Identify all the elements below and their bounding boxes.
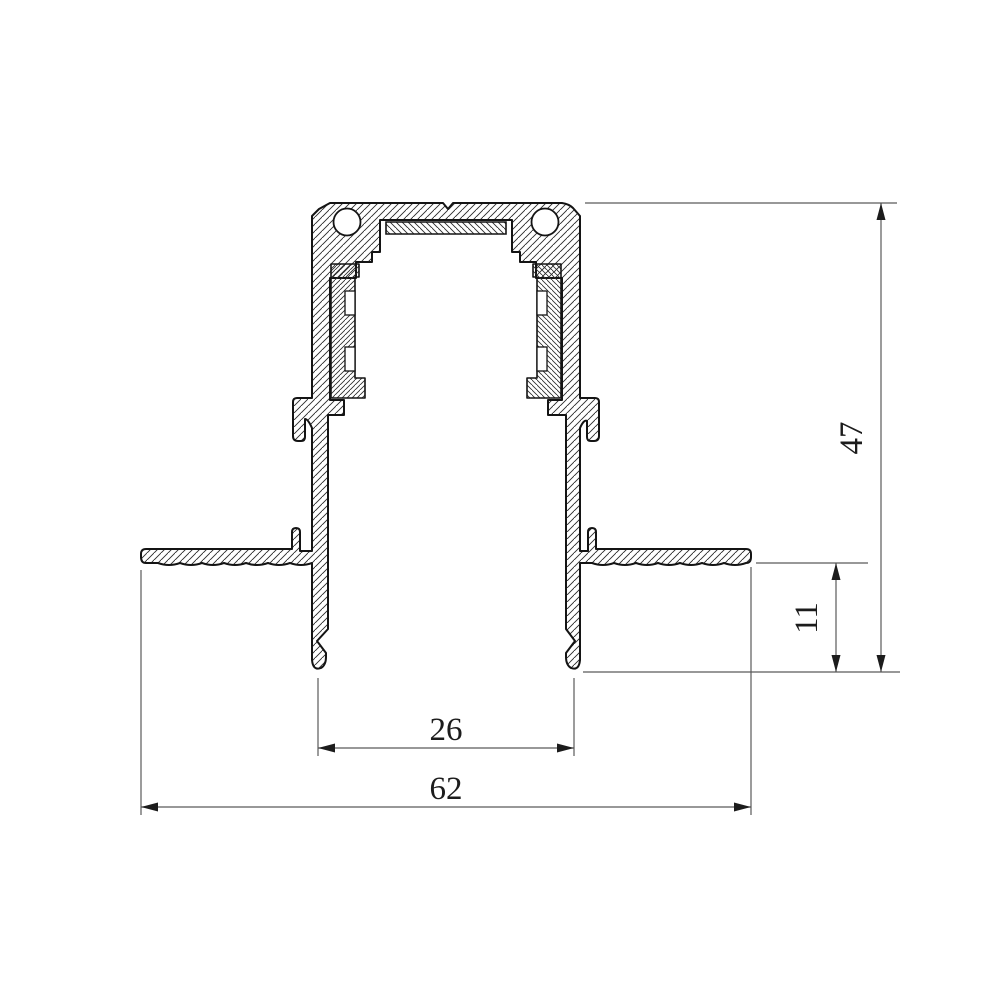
arrowhead-up: [832, 563, 841, 580]
contact-window-left-upper: [345, 291, 355, 315]
arrowhead-right: [557, 744, 574, 753]
screw-hole-left: [334, 209, 361, 236]
dimension-label-11: 11: [789, 602, 825, 634]
dimension-inner-width: 26: [318, 712, 574, 753]
dimension-label-47: 47: [834, 422, 870, 455]
arrowhead-down: [832, 655, 841, 672]
contact-window-right-lower: [537, 347, 547, 371]
conductor-housing-left: [331, 264, 365, 398]
contact-window-left-lower: [345, 347, 355, 371]
dimension-overall-height: 47: [834, 203, 886, 672]
profile-body: [141, 203, 751, 669]
dimension-flange-depth: 11: [789, 563, 841, 672]
extension-lines: [141, 203, 900, 815]
arrowhead-right: [734, 803, 751, 812]
technical-drawing-canvas: 47 11 26 62: [0, 0, 1000, 1000]
profile-cross-section-drawing: 47 11 26 62: [0, 0, 1000, 1000]
arrowhead-left: [318, 744, 335, 753]
arrowhead-up: [877, 203, 886, 220]
arrowhead-down: [877, 655, 886, 672]
top-insert-strip: [386, 222, 506, 234]
arrowhead-left: [141, 803, 158, 812]
dimension-overall-width: 62: [141, 771, 751, 812]
contact-window-right-upper: [537, 291, 547, 315]
dimension-label-62: 62: [430, 771, 463, 807]
dimension-label-26: 26: [430, 712, 463, 748]
screw-hole-right: [532, 209, 559, 236]
profile-body-outline: [141, 203, 751, 669]
conductor-housing-right: [527, 264, 561, 398]
